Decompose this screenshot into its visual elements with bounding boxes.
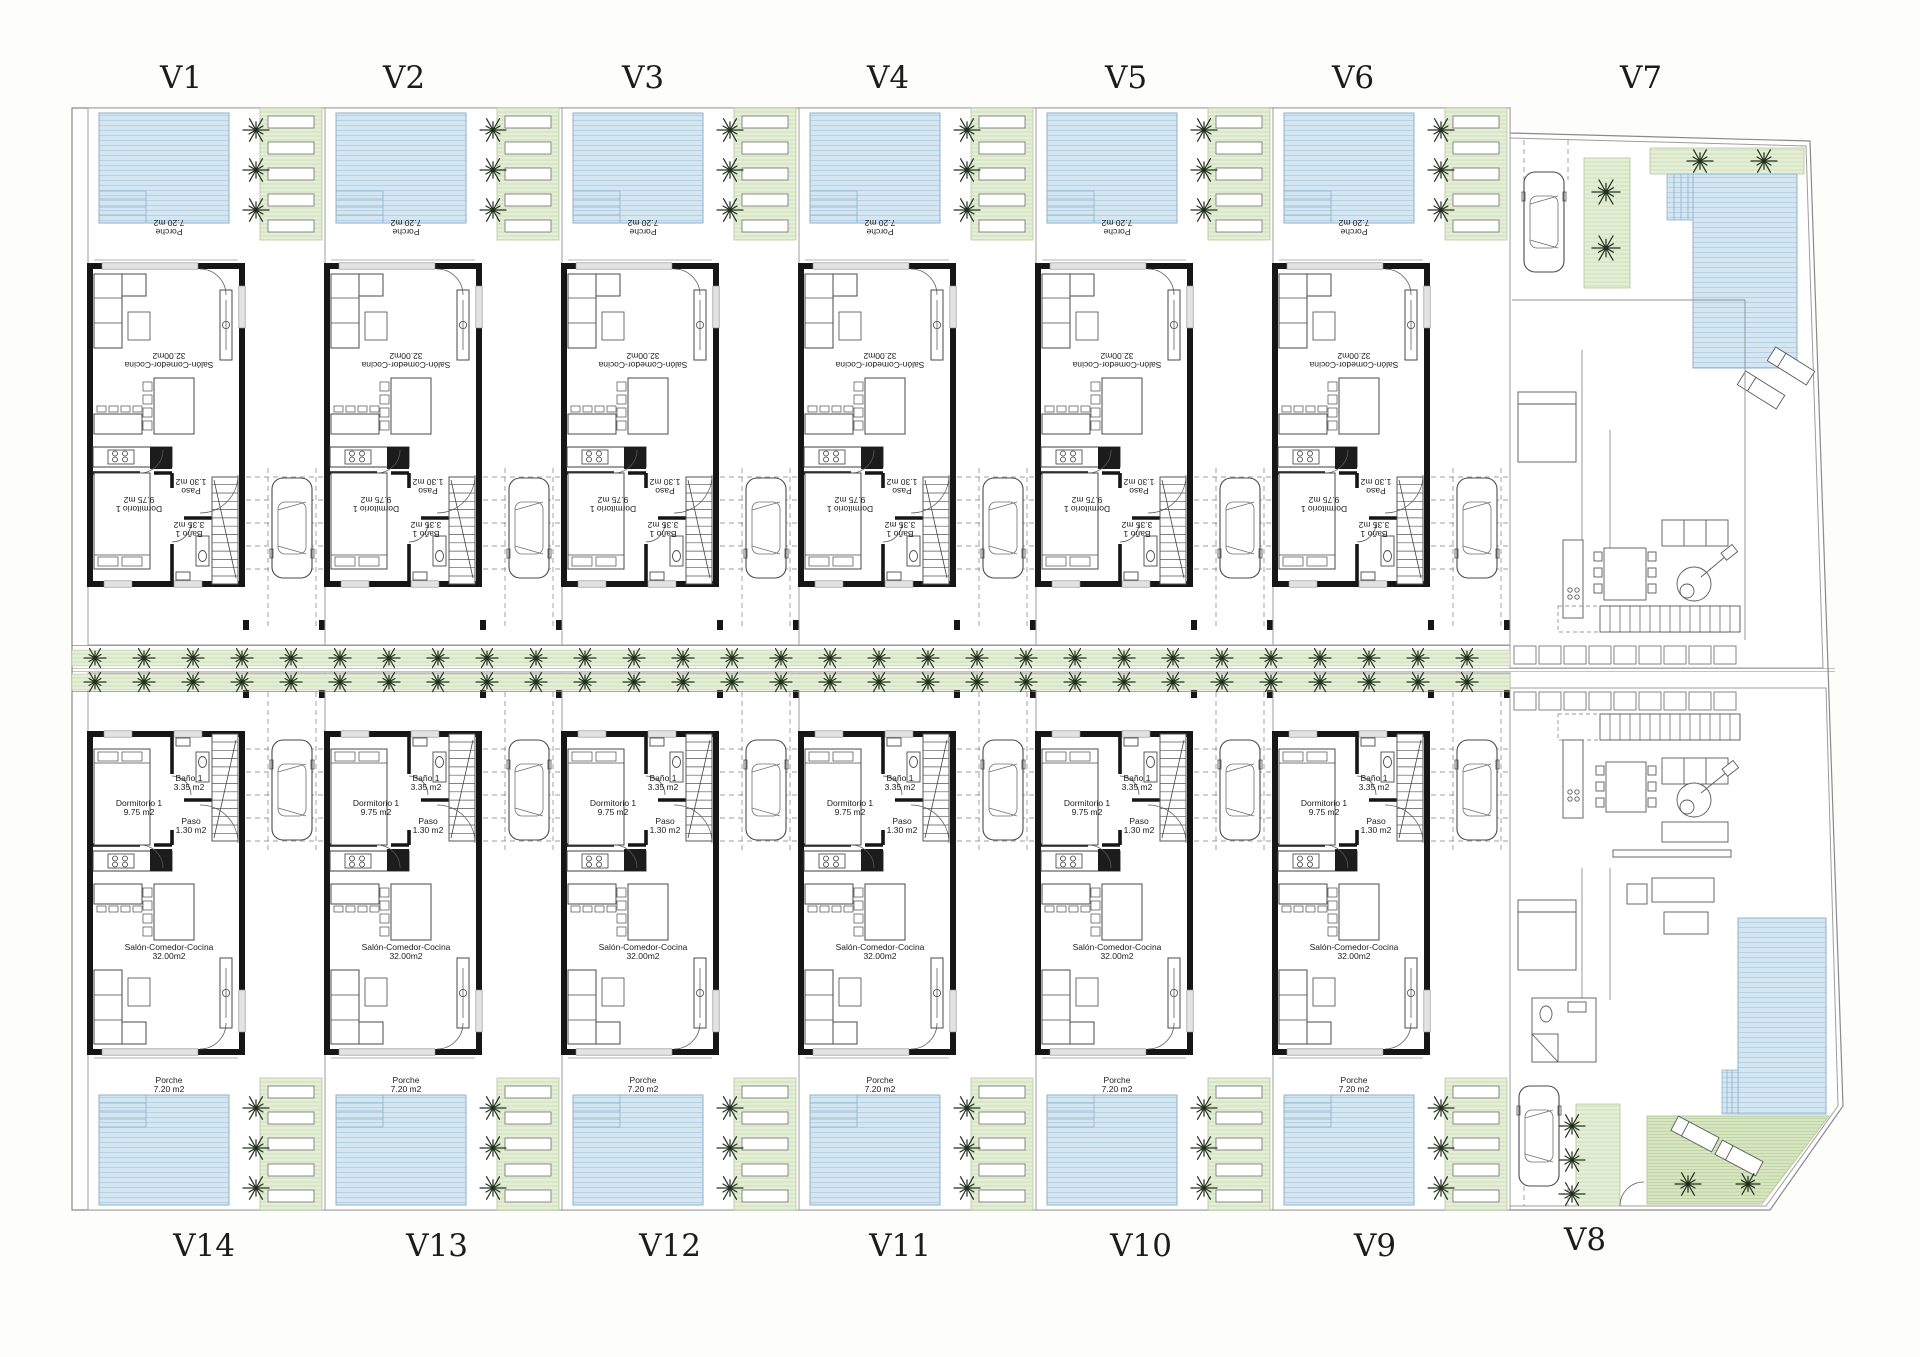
room-label: 1.30 m2 <box>1123 477 1154 487</box>
room-label: 9.75 m2 <box>1308 495 1339 505</box>
site-plan-canvas: Baño 13.35 m2Dormitorio 19.75 m2Paso1.30… <box>0 0 1920 1357</box>
villa-v2: Baño 13.35 m2Dormitorio 19.75 m2Paso1.30… <box>325 108 562 645</box>
staircase <box>1397 734 1423 841</box>
garden <box>1584 158 1630 288</box>
car <box>1522 172 1566 272</box>
staircase <box>212 477 238 584</box>
room-label: 32.00m2 <box>626 951 659 961</box>
pool <box>573 113 703 223</box>
kitchen-counter <box>1041 447 1120 469</box>
villa-label-v11: V11 <box>868 1228 931 1264</box>
room-label: 1.30 m2 <box>649 477 680 487</box>
villa-label-v2: V2 <box>382 60 425 96</box>
villa-v10: Baño 13.35 m2Dormitorio 19.75 m2Paso1.30… <box>1036 673 1273 1210</box>
room-label: 3.35 m2 <box>884 520 915 530</box>
garden <box>1445 1078 1507 1210</box>
wall-stub <box>1428 620 1434 630</box>
bed <box>568 749 624 845</box>
villa-label-v10: V10 <box>1109 1228 1172 1264</box>
pool <box>1047 1095 1177 1205</box>
room-label: 32.00m2 <box>1337 951 1370 961</box>
room-label: 7.20 m2 <box>391 1084 422 1094</box>
kitchen-counter <box>1041 849 1120 871</box>
room-label: 9.75 m2 <box>1309 807 1340 817</box>
room-label: 7.20 m2 <box>1339 1084 1370 1094</box>
bed <box>805 749 861 845</box>
room-label: 1.30 m2 <box>650 825 681 835</box>
garden <box>497 1078 559 1210</box>
wall-stub <box>793 620 799 630</box>
kitchen-counter <box>330 447 409 469</box>
room-label: 7.20 m2 <box>865 1084 896 1094</box>
villa-label-v5: V5 <box>1104 60 1147 96</box>
staircase <box>1160 477 1186 584</box>
pool <box>573 1095 703 1205</box>
staircase <box>923 734 949 841</box>
villa-label-v8: V8 <box>1563 1222 1606 1258</box>
villa-label-v13: V13 <box>405 1228 468 1264</box>
bed <box>805 473 861 569</box>
room-label: 32.00m2 <box>863 351 896 361</box>
tv-unit <box>694 290 706 360</box>
kitchen-counter <box>330 849 409 871</box>
pool <box>1284 113 1414 223</box>
tv-unit <box>1405 958 1417 1028</box>
garden <box>260 1078 322 1210</box>
room-label: 3.35 m2 <box>885 782 916 792</box>
kitchen-counter <box>1278 849 1357 871</box>
room-label: 9.75 m2 <box>598 807 629 817</box>
room-label: 3.35 m2 <box>411 782 442 792</box>
tv-unit <box>931 290 943 360</box>
room-label: 3.35 m2 <box>1122 782 1153 792</box>
room-label: 3.35 m2 <box>173 520 204 530</box>
room-label: 32.00m2 <box>1100 951 1133 961</box>
room-label: 7.20 m2 <box>864 218 895 228</box>
car <box>507 478 551 578</box>
garden <box>1208 1078 1270 1210</box>
room-label: 32.00m2 <box>389 951 422 961</box>
tv-unit <box>457 290 469 360</box>
room-label: 3.35 m2 <box>410 520 441 530</box>
room-label: 9.75 m2 <box>123 495 154 505</box>
pool <box>99 113 229 223</box>
villa-label-v9: V9 <box>1353 1228 1396 1264</box>
room-label: 1.30 m2 <box>412 477 443 487</box>
room-label: 1.30 m2 <box>176 825 207 835</box>
staircase <box>449 734 475 841</box>
room-label: 3.35 m2 <box>174 782 205 792</box>
pool <box>810 113 940 223</box>
room-label: 9.75 m2 <box>1072 807 1103 817</box>
villa-label-v3: V3 <box>621 60 664 96</box>
street-facade-glazing <box>1514 646 1736 664</box>
room-label: 32.00m2 <box>389 351 422 361</box>
street-facade-glazing <box>1514 692 1736 710</box>
room-label: 7.20 m2 <box>390 218 421 228</box>
villa-label-v4: V4 <box>866 60 909 96</box>
room-label: 1.30 m2 <box>886 477 917 487</box>
room-label: 7.20 m2 <box>627 218 658 228</box>
villa-v1: Baño 13.35 m2Dormitorio 19.75 m2Paso1.30… <box>88 108 325 645</box>
kitchen-counter <box>567 849 646 871</box>
room-label: 32.00m2 <box>152 951 185 961</box>
staircase <box>1160 734 1186 841</box>
tv-unit <box>220 958 232 1028</box>
villa-label-v7: V7 <box>1619 60 1662 96</box>
wall-stub <box>717 620 723 630</box>
wall-stub <box>243 620 249 630</box>
room-label: 3.35 m2 <box>647 520 678 530</box>
room-label: 1.30 m2 <box>175 477 206 487</box>
room-label: 32.00m2 <box>152 351 185 361</box>
kitchen-counter <box>804 447 883 469</box>
villa-v12: Baño 13.35 m2Dormitorio 19.75 m2Paso1.30… <box>562 673 799 1210</box>
wall-stub <box>480 620 486 630</box>
villa-label-v12: V12 <box>638 1228 701 1264</box>
pool <box>99 1095 229 1205</box>
room-label: 9.75 m2 <box>597 495 628 505</box>
pool <box>1047 113 1177 223</box>
bed <box>1279 473 1335 569</box>
kitchen-counter <box>93 849 172 871</box>
garden <box>734 108 796 240</box>
wall-stub <box>556 620 562 630</box>
room-label: 1.30 m2 <box>1124 825 1155 835</box>
room-label: 1.30 m2 <box>1360 477 1391 487</box>
room-label: 3.35 m2 <box>648 782 679 792</box>
villa-v13: Baño 13.35 m2Dormitorio 19.75 m2Paso1.30… <box>325 673 562 1210</box>
villa-v3: Baño 13.35 m2Dormitorio 19.75 m2Paso1.30… <box>562 108 799 645</box>
garden <box>971 108 1033 240</box>
car <box>744 478 788 578</box>
room-label: 32.00m2 <box>1337 351 1370 361</box>
wall-stub <box>1267 620 1273 630</box>
car <box>1218 478 1262 578</box>
room-label: 7.20 m2 <box>1102 1084 1133 1094</box>
staircase <box>449 477 475 584</box>
tv-unit <box>694 958 706 1028</box>
tv-unit <box>1168 958 1180 1028</box>
villa-v7 <box>1510 138 1823 668</box>
bed <box>331 473 387 569</box>
wall-stub <box>1191 620 1197 630</box>
garden <box>1208 108 1270 240</box>
car <box>1218 740 1262 840</box>
car <box>270 740 314 840</box>
kitchen-counter <box>1278 447 1357 469</box>
car <box>1517 1086 1561 1186</box>
villa-v14: Baño 13.35 m2Dormitorio 19.75 m2Paso1.30… <box>88 673 325 1210</box>
kitchen-counter <box>804 849 883 871</box>
car <box>981 740 1025 840</box>
room-label: 7.20 m2 <box>628 1084 659 1094</box>
staircase <box>686 477 712 584</box>
room-label: 9.75 m2 <box>1071 495 1102 505</box>
garden <box>971 1078 1033 1210</box>
wall-stub <box>319 620 325 630</box>
room-label: 9.75 m2 <box>361 807 392 817</box>
staircase <box>212 734 238 841</box>
villa-v8 <box>1510 688 1838 1206</box>
bed <box>1279 749 1335 845</box>
bed <box>331 749 387 845</box>
tv-unit <box>1405 290 1417 360</box>
villa-label-v14: V14 <box>172 1228 235 1264</box>
room-label: 9.75 m2 <box>360 495 391 505</box>
car <box>744 740 788 840</box>
room-label: 32.00m2 <box>626 351 659 361</box>
car <box>270 478 314 578</box>
garden <box>497 108 559 240</box>
room-label: 7.20 m2 <box>154 1084 185 1094</box>
staircase <box>1397 477 1423 584</box>
room-label: 1.30 m2 <box>413 825 444 835</box>
room-label: 9.75 m2 <box>124 807 155 817</box>
villa-v4: Baño 13.35 m2Dormitorio 19.75 m2Paso1.30… <box>799 108 1036 645</box>
pool <box>336 1095 466 1205</box>
bed <box>1042 473 1098 569</box>
pool <box>1284 1095 1414 1205</box>
room-label: 1.30 m2 <box>1361 825 1392 835</box>
room-label: 7.20 m2 <box>153 218 184 228</box>
car <box>981 478 1025 578</box>
room-label: 3.35 m2 <box>1358 520 1389 530</box>
bed <box>94 473 150 569</box>
garden <box>1445 108 1507 240</box>
room-label: 3.35 m2 <box>1359 782 1390 792</box>
garden <box>1650 148 1804 174</box>
wall-stub <box>1030 620 1036 630</box>
pool <box>336 113 466 223</box>
villa-v6: Baño 13.35 m2Dormitorio 19.75 m2Paso1.30… <box>1273 108 1510 645</box>
bed <box>94 749 150 845</box>
car <box>507 740 551 840</box>
staircase <box>686 734 712 841</box>
room-label: 1.30 m2 <box>887 825 918 835</box>
tv-unit <box>220 290 232 360</box>
car <box>1455 740 1499 840</box>
kitchen-counter <box>93 447 172 469</box>
pool <box>1722 918 1826 1114</box>
staircase <box>923 477 949 584</box>
villa-label-v6: V6 <box>1331 60 1374 96</box>
garden <box>734 1078 796 1210</box>
villa-v5: Baño 13.35 m2Dormitorio 19.75 m2Paso1.30… <box>1036 108 1273 645</box>
garden <box>1576 1104 1620 1206</box>
wall-stub <box>1504 620 1510 630</box>
wall-stub <box>954 620 960 630</box>
site-plan: Baño 13.35 m2Dormitorio 19.75 m2Paso1.30… <box>0 0 1920 1357</box>
car <box>1455 478 1499 578</box>
room-label: 3.35 m2 <box>1121 520 1152 530</box>
tv-unit <box>931 958 943 1028</box>
villa-label-v1: V1 <box>159 60 202 96</box>
room-label: 7.20 m2 <box>1101 218 1132 228</box>
bed <box>1042 749 1098 845</box>
room-label: 9.75 m2 <box>835 807 866 817</box>
room-label: 32.00m2 <box>1100 351 1133 361</box>
room-label: 9.75 m2 <box>834 495 865 505</box>
pool <box>810 1095 940 1205</box>
villa-v9: Baño 13.35 m2Dormitorio 19.75 m2Paso1.30… <box>1273 673 1510 1210</box>
kitchen-counter <box>567 447 646 469</box>
villa-v11: Baño 13.35 m2Dormitorio 19.75 m2Paso1.30… <box>799 673 1036 1210</box>
room-label: 32.00m2 <box>863 951 896 961</box>
bed <box>568 473 624 569</box>
tv-unit <box>457 958 469 1028</box>
garden <box>260 108 322 240</box>
tv-unit <box>1168 290 1180 360</box>
room-label: 7.20 m2 <box>1338 218 1369 228</box>
